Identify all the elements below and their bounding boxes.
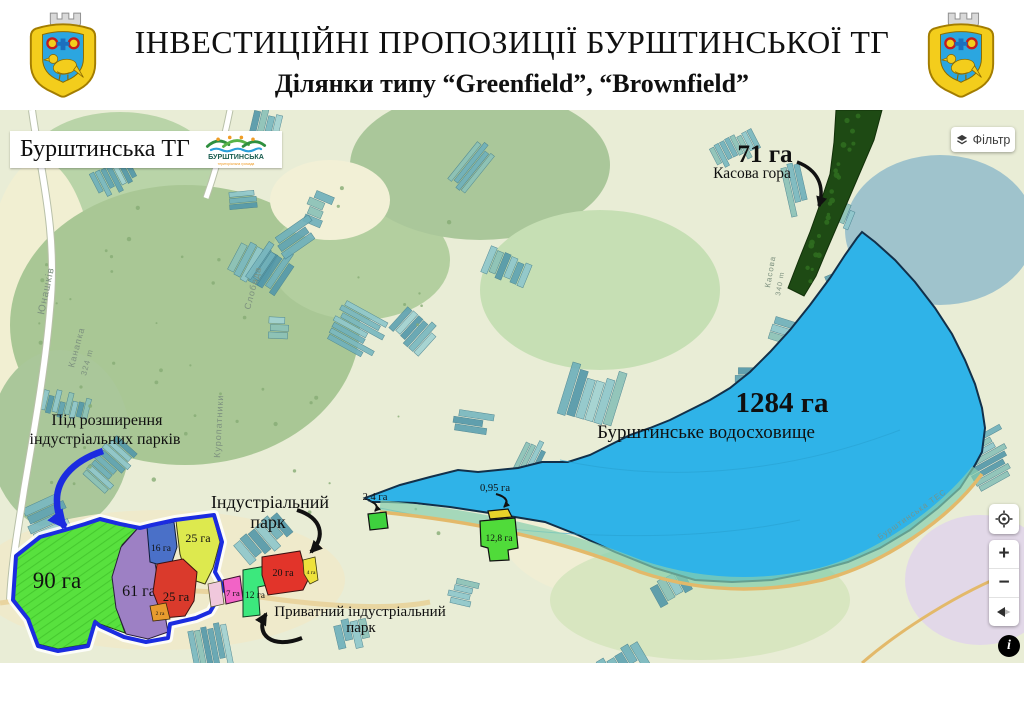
kasova-name-label: Касова гора [713,165,791,182]
parcel-4ha-label: 4 га [307,570,316,576]
header: ІНВЕСТИЦІЙНІ ПРОПОЗИЦІЇ БУРШТИНСЬКОЇ ТГ … [0,0,1024,110]
industrial-park-label-line2: парк [250,512,286,532]
parcel-20ha-label: 20 га [272,568,294,579]
info-icon: i [1007,638,1011,654]
community-label: Бурштинська ТГ [20,131,190,168]
filter-button-label: Фільтр [973,133,1011,147]
page-title: ІНВЕСТИЦІЙНІ ПРОПОЗИЦІЇ БУРШТИНСЬКОЇ ТГ [0,0,1024,61]
parcel-20ha[interactable]: 20 га [262,551,308,595]
compass-arrow-icon [996,606,1012,618]
page-subtitle: Ділянки типу “Greenfield”, “Brownfield” [0,69,1024,99]
info-button[interactable]: i [998,635,1020,657]
private-park-label-line1: Приватний індустріальний [274,604,446,620]
layers-icon [956,134,968,146]
parcel-90ha-label: 90 га [33,568,81,593]
parcel-25ha-red-label: 25 га [163,590,190,604]
parcel-7ha-label: 7 га [226,588,240,598]
compass-button[interactable] [989,598,1019,626]
parcel-7ha[interactable]: 7 га [223,576,243,604]
parcel-2ha[interactable]: 2 га [150,603,170,621]
parcel-16ha-label: 16 га [151,544,172,554]
coat-of-arms-right-icon [922,9,1000,103]
reservoir-name-label: Бурштинське водосховище [597,422,815,443]
industrial-park-label-line1: Індустріальний [211,492,329,512]
parcel-12-8ha-label: 12,8 га [485,534,513,544]
footer-strip [0,663,1024,724]
crosshair-icon [995,510,1013,528]
community-logo-icon: БУРШТИНСЬКА територіальна громада [198,133,274,167]
page: ІНВЕСТИЦІЙНІ ПРОПОЗИЦІЇ БУРШТИНСЬКОЇ ТГ … [0,0,1024,724]
geolocate-button[interactable] [989,504,1019,534]
map[interactable]: Юнашків Канапка 324 m Куропатники Слобод… [0,110,1024,663]
filter-button[interactable]: Фільтр [951,127,1015,152]
private-park-label-line2: парк [346,620,376,636]
zoom-controls: + − [989,540,1019,626]
expansion-label-line1: Під розширення [52,412,164,429]
community-label-box: Бурштинська ТГ БУРШТИНСЬКА територіальна… [10,131,282,168]
coat-of-arms-left-icon [24,9,102,103]
parcel-25ha-yellow-label: 25 га [185,531,211,545]
parcel-2ha-label: 2 га [156,611,165,617]
zoom-out-button[interactable]: − [989,569,1019,598]
logo-line2: територіальна громада [218,162,255,166]
kasova-area-label: 71 га [737,141,793,168]
zoom-in-button[interactable]: + [989,540,1019,569]
parcel-unlabeled[interactable] [208,581,224,607]
logo-line1: БУРШТИНСЬКА [208,152,264,160]
parcel-12ha-label: 12 га [245,591,266,601]
parcel-0-95ha-label: 0,95 га [480,483,510,494]
parcel-61ha-label: 61 га [122,583,156,600]
reservoir-area-label: 1284 га [736,387,829,419]
expansion-label-line2: індустріальних парків [30,431,181,448]
parcel-2-4ha-label: 2,4 га [363,492,388,503]
